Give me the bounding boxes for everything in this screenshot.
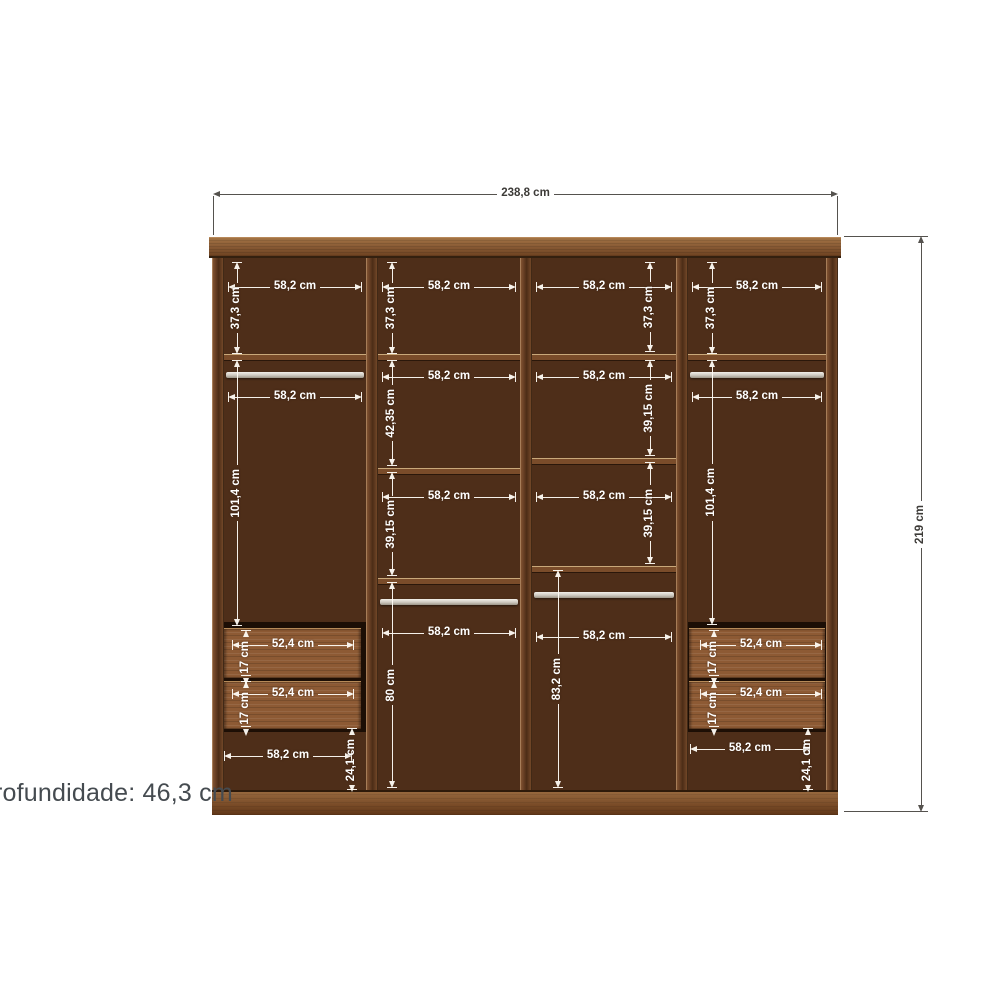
dim-line [392, 589, 393, 665]
dim-tick [347, 728, 357, 729]
dim-line [558, 577, 559, 654]
dim-tick [232, 640, 233, 650]
dimension-label: 58,2 cm [732, 281, 782, 293]
dim-line [474, 497, 509, 498]
dimension-label: 58,2 cm [424, 281, 474, 293]
dim-arrow-end-icon [243, 729, 249, 736]
dim-arrow-end-icon [711, 729, 717, 736]
dim-arrow-start-icon [647, 262, 653, 269]
dimension-label: 39,15 cm [386, 496, 398, 553]
left-wall [212, 255, 224, 790]
dim-tick [241, 630, 251, 631]
dim-arrow-start-icon [389, 360, 395, 367]
dim-arrow-start-icon [382, 374, 389, 380]
dim-line [712, 269, 713, 283]
dim-arrow-start-icon [234, 262, 240, 269]
wardrobe-plinth [212, 790, 838, 815]
dim-tick [645, 455, 655, 456]
dim-tick [803, 789, 813, 790]
dim-tick [232, 625, 242, 626]
right-wall [826, 255, 838, 790]
dim-line [392, 552, 393, 569]
dim-tick [645, 262, 655, 263]
dim-tick [387, 582, 397, 583]
dim-tick [347, 789, 357, 790]
dim-arrow-start-icon [647, 462, 653, 469]
dimension-label: 52,4 cm [268, 688, 318, 700]
dim-tick [553, 570, 563, 571]
dimension-label: 24,1 cm [802, 735, 814, 785]
hanging-rail-c2 [380, 599, 518, 605]
dim-arrow-start-icon [234, 360, 240, 367]
dim-tick [382, 492, 383, 502]
dim-line [231, 756, 263, 757]
dim-tick [241, 675, 251, 676]
dim-tick [361, 282, 362, 292]
depth-note: rofundidade: 46,3 cm [0, 779, 233, 808]
dim-arrow-start-icon [690, 746, 697, 752]
dim-tick [821, 689, 822, 699]
dim-line [237, 269, 238, 283]
dimension-label: 58,2 cm [270, 281, 320, 293]
dimension-label: 83,2 cm [552, 654, 564, 704]
dim-arrow-start-icon [709, 262, 715, 269]
dim-arrow-start-icon [389, 262, 395, 269]
dim-tick [645, 360, 655, 361]
dim-line [220, 194, 497, 195]
dim-line [650, 269, 651, 282]
hanging-rail-c3 [534, 592, 674, 598]
dim-line [712, 367, 713, 464]
dim-tick [709, 630, 719, 631]
dim-line [712, 521, 713, 618]
dimension-label: 17 cm [240, 688, 252, 729]
dim-line [543, 497, 579, 498]
dim-line [318, 645, 347, 646]
dim-tick [536, 282, 537, 292]
dim-line [921, 548, 922, 806]
dimension-label: 238,8 cm [497, 188, 554, 200]
divider-2 [520, 255, 532, 790]
dim-tick [536, 372, 537, 382]
dim-tick [387, 465, 397, 466]
dim-tick [803, 728, 813, 729]
dim-arrow-start-icon [213, 191, 220, 197]
dim-arrow-start-icon [692, 394, 699, 400]
dim-arrow-start-icon [243, 681, 249, 688]
dim-arrow-start-icon [349, 728, 355, 735]
shelf-c2-top [378, 354, 520, 361]
dim-arrow-start-icon [692, 284, 699, 290]
dim-tick [224, 751, 225, 761]
dimension-label: 37,3 cm [706, 283, 718, 333]
dimension-label: 58,2 cm [579, 491, 629, 503]
dim-line [392, 705, 393, 781]
dim-tick [241, 726, 251, 727]
dim-tick [228, 392, 229, 402]
dim-line [786, 694, 815, 695]
dim-tick [700, 640, 701, 650]
dim-arrow-start-icon [536, 494, 543, 500]
dimension-label: 101,4 cm [706, 464, 718, 521]
dim-tick [361, 392, 362, 402]
dim-line [650, 436, 651, 449]
dimension-label: 58,2 cm [579, 371, 629, 383]
dim-tick [382, 282, 383, 292]
dim-tick [700, 689, 701, 699]
dim-tick [387, 262, 397, 263]
dim-arrow-start-icon [224, 753, 231, 759]
dim-tick [671, 372, 672, 382]
dim-line [543, 637, 579, 638]
dimension-label: 58,2 cm [270, 391, 320, 403]
dim-line [782, 287, 815, 288]
dim-tick [515, 372, 516, 382]
dim-tick [353, 689, 354, 699]
dim-tick [690, 744, 691, 754]
dimension-label: 58,2 cm [579, 631, 629, 643]
dim-line [650, 469, 651, 485]
hanging-rail-c1 [226, 372, 364, 378]
dimension-label: 37,3 cm [644, 282, 656, 332]
dim-tick [387, 360, 397, 361]
dim-arrow-start-icon [711, 630, 717, 637]
divider-1 [366, 255, 378, 790]
divider-3 [676, 255, 688, 790]
dim-tick [232, 689, 233, 699]
dim-tick [382, 372, 383, 382]
dim-tick [536, 632, 537, 642]
dim-line [237, 367, 238, 465]
dimension-label: 39,15 cm [644, 485, 656, 542]
dim-tick [709, 681, 719, 682]
dim-arrow-start-icon [228, 394, 235, 400]
dim-tick [707, 353, 717, 354]
dimension-label: 39,15 cm [644, 380, 656, 437]
dim-arrow-start-icon [555, 570, 561, 577]
dim-tick [645, 462, 655, 463]
dim-tick [707, 262, 717, 263]
dim-line [237, 333, 238, 347]
dimension-label: 17 cm [240, 637, 252, 678]
dim-extension-line [844, 236, 928, 237]
dimension-label: 37,3 cm [231, 283, 243, 333]
dim-line [389, 633, 424, 634]
dim-line [543, 377, 579, 378]
dim-line [650, 367, 651, 380]
dim-tick [821, 392, 822, 402]
dim-arrow-start-icon [647, 360, 653, 367]
dimension-label: 80 cm [386, 665, 398, 706]
dimension-label: 52,4 cm [268, 639, 318, 651]
dimension-label: 24,1 cm [346, 735, 358, 785]
dim-line [699, 397, 732, 398]
dim-arrow-start-icon [382, 630, 389, 636]
dim-line [474, 377, 509, 378]
dim-arrow-start-icon [918, 236, 924, 243]
dim-tick [692, 282, 693, 292]
dim-line [318, 694, 347, 695]
dimension-label: 52,4 cm [736, 639, 786, 651]
hanging-rail-c4 [690, 372, 824, 378]
dim-tick [232, 353, 242, 354]
dim-arrow-start-icon [536, 634, 543, 640]
dim-line [629, 637, 665, 638]
dim-line [650, 541, 651, 557]
dim-line [389, 377, 424, 378]
dim-line [712, 333, 713, 347]
dimension-label: 42,35 cm [386, 385, 398, 442]
dim-arrow-start-icon [389, 472, 395, 479]
dim-line [237, 521, 238, 619]
dim-tick [692, 392, 693, 402]
dimension-label: 52,4 cm [736, 688, 786, 700]
shelf-c1-top [224, 354, 366, 361]
dim-line [650, 332, 651, 345]
dim-tick [645, 351, 655, 352]
dim-tick [515, 628, 516, 638]
dim-tick [515, 492, 516, 502]
dim-arrow-start-icon [389, 582, 395, 589]
dim-line [558, 704, 559, 781]
dim-tick [707, 360, 717, 361]
dim-tick [353, 640, 354, 650]
dim-line [392, 441, 393, 459]
dim-line [474, 287, 509, 288]
dim-line [474, 633, 509, 634]
dim-tick [671, 632, 672, 642]
dim-tick [671, 282, 672, 292]
dimension-label: 58,2 cm [263, 750, 313, 762]
dim-tick [382, 628, 383, 638]
dimension-label: 17 cm [708, 688, 720, 729]
dim-tick [553, 787, 563, 788]
dim-line [921, 243, 922, 501]
dimension-label: 58,2 cm [579, 281, 629, 293]
dim-line [320, 397, 355, 398]
dim-tick [536, 492, 537, 502]
dimension-label: 17 cm [708, 637, 720, 678]
dim-line [320, 287, 355, 288]
dim-arrow-start-icon [536, 284, 543, 290]
dim-extension-line [844, 811, 928, 812]
dim-tick [709, 675, 719, 676]
dim-tick [232, 262, 242, 263]
dim-extension-line [837, 196, 838, 235]
dim-line [392, 479, 393, 496]
dim-line [235, 397, 270, 398]
dim-tick [821, 282, 822, 292]
dim-tick [387, 787, 397, 788]
dim-tick [645, 563, 655, 564]
dim-line [629, 377, 665, 378]
dim-line [697, 749, 725, 750]
dim-line [782, 397, 815, 398]
dim-line [554, 194, 831, 195]
dimension-label: 219 cm [915, 501, 927, 548]
dim-arrow-start-icon [711, 681, 717, 688]
dimension-label: 37,3 cm [386, 283, 398, 333]
dim-arrow-start-icon [805, 728, 811, 735]
wardrobe-crown [209, 237, 841, 258]
dim-tick [241, 681, 251, 682]
shelf-c2-low [378, 578, 520, 585]
dim-extension-line [213, 196, 214, 235]
dim-tick [232, 360, 242, 361]
dimension-label: 58,2 cm [424, 627, 474, 639]
dim-line [775, 749, 803, 750]
dimension-label: 58,2 cm [424, 491, 474, 503]
dim-tick [387, 575, 397, 576]
wardrobe-dimension-diagram: rofundidade: 46,3 cm 238,8 cm219 cm58,2 … [0, 0, 1000, 1000]
dimension-label: 101,4 cm [231, 465, 243, 522]
dim-tick [709, 726, 719, 727]
dimension-label: 58,2 cm [424, 371, 474, 383]
dim-line [392, 333, 393, 347]
shelf-c2-mid [378, 468, 520, 475]
dim-arrow-start-icon [536, 374, 543, 380]
dimension-label: 58,2 cm [732, 391, 782, 403]
dim-tick [387, 353, 397, 354]
dim-tick [821, 640, 822, 650]
dim-tick [671, 492, 672, 502]
dim-arrow-start-icon [709, 360, 715, 367]
dimension-label: 58,2 cm [725, 743, 775, 755]
dim-line [786, 645, 815, 646]
dim-arrow-start-icon [243, 630, 249, 637]
dim-line [392, 269, 393, 283]
dim-tick [707, 624, 717, 625]
dim-line [313, 756, 345, 757]
dim-line [543, 287, 579, 288]
dim-line [392, 367, 393, 385]
dim-tick [515, 282, 516, 292]
dim-tick [387, 472, 397, 473]
